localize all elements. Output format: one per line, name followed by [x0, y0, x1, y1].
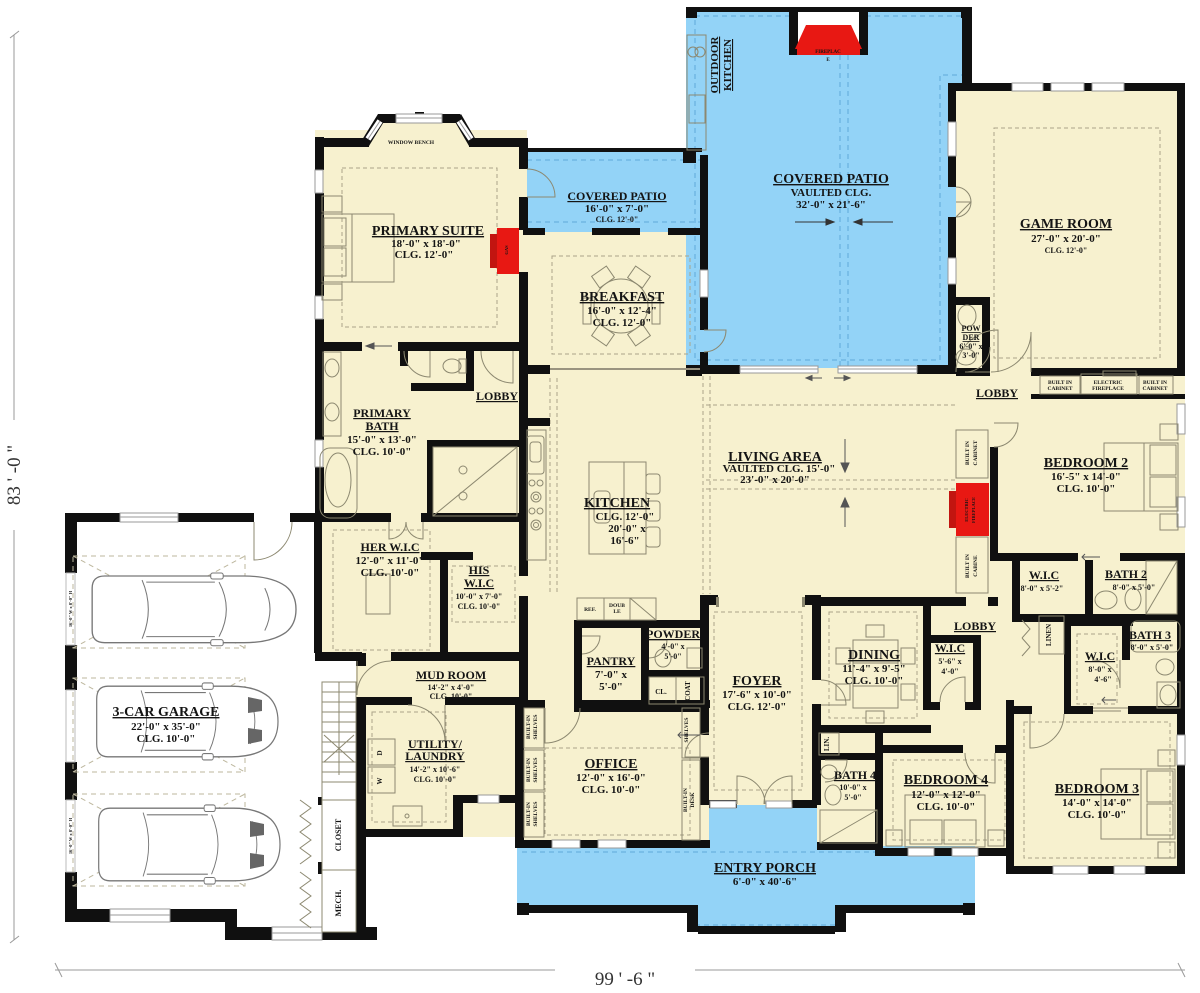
svg-text:DESK: DESK	[690, 792, 696, 808]
svg-text:KITCHEN: KITCHEN	[722, 39, 734, 91]
svg-text:COVERED PATIO: COVERED PATIO	[567, 189, 666, 203]
svg-text:BEDROOM 4: BEDROOM 4	[904, 773, 988, 788]
svg-text:MUD ROOM: MUD ROOM	[416, 668, 486, 682]
svg-text:SHELVES: SHELVES	[684, 718, 690, 743]
svg-text:4'-6": 4'-6"	[1094, 675, 1111, 684]
svg-text:PANTRY: PANTRY	[587, 654, 636, 668]
svg-text:CLG. 12'-0": CLG. 12'-0"	[593, 317, 652, 329]
svg-text:CLG. 10'-0": CLG. 10'-0"	[361, 567, 420, 579]
svg-text:6'-0" x 40'-6": 6'-0" x 40'-6"	[733, 876, 797, 888]
svg-text:ENTRY PORCH: ENTRY PORCH	[714, 861, 816, 876]
svg-text:SHELVES: SHELVES	[533, 802, 539, 827]
svg-text:14'-2" x 10'-6": 14'-2" x 10'-6"	[410, 765, 461, 774]
svg-text:16'-0" W x 8'-0" H: 16'-0" W x 8'-0" H	[68, 817, 73, 854]
svg-text:CLG. 10'-0": CLG. 10'-0"	[414, 775, 457, 784]
svg-text:PRIMARY SUITE: PRIMARY SUITE	[372, 224, 484, 239]
svg-text:LOBBY: LOBBY	[976, 386, 1018, 400]
svg-text:CLG. 10'-0": CLG. 10'-0"	[430, 692, 473, 701]
svg-text:27'-0" x 20'-0": 27'-0" x 20'-0"	[1031, 233, 1101, 245]
svg-text:SHELVES: SHELVES	[533, 715, 539, 740]
svg-text:CLG. 10'-0": CLG. 10'-0"	[353, 446, 412, 458]
svg-text:POW: POW	[961, 324, 980, 333]
svg-text:16'-6": 16'-6"	[610, 535, 639, 547]
svg-text:8'-0" x: 8'-0" x	[1088, 665, 1111, 674]
svg-text:FIREPLAC: FIREPLAC	[815, 50, 841, 55]
svg-text:4'-0": 4'-0"	[941, 667, 958, 676]
svg-text:12'-0" x 16'-0": 12'-0" x 16'-0"	[576, 772, 646, 784]
svg-text:MECH.: MECH.	[334, 890, 343, 917]
svg-text:CLG. 12'-0": CLG. 12'-0"	[1045, 246, 1088, 255]
svg-text:CLOSET: CLOSET	[334, 818, 343, 851]
svg-text:5'-0": 5'-0"	[844, 793, 861, 802]
svg-text:COAT: COAT	[684, 681, 692, 701]
svg-text:12'-0" x 11'-0": 12'-0" x 11'-0"	[355, 555, 424, 567]
svg-text:D: D	[376, 750, 384, 755]
svg-text:WINDOW BENCH: WINDOW BENCH	[388, 140, 435, 146]
svg-text:BATH 2: BATH 2	[1105, 567, 1147, 581]
svg-text:CLG. 12'-0": CLG. 12'-0"	[596, 215, 639, 224]
svg-text:8'-0" x 5'-2": 8'-0" x 5'-2"	[1021, 584, 1064, 593]
svg-text:FOYER: FOYER	[733, 674, 783, 689]
svg-text:20'-0" x: 20'-0" x	[608, 523, 646, 535]
svg-text:HIS: HIS	[469, 563, 490, 577]
svg-text:CLG. 10'-0": CLG. 10'-0"	[458, 602, 501, 611]
svg-text:COVERED PATIO: COVERED PATIO	[773, 172, 889, 187]
svg-text:FIREPLACE: FIREPLACE	[1092, 386, 1124, 392]
svg-text:10'-0" x 7'-0": 10'-0" x 7'-0"	[456, 592, 503, 601]
svg-text:OUTDOOR: OUTDOOR	[709, 36, 721, 94]
svg-text:POWDER: POWDER	[646, 627, 700, 641]
svg-text:83 ' -0 ": 83 ' -0 "	[4, 445, 25, 505]
svg-text:W: W	[376, 778, 384, 785]
svg-text:CLG. 10'-0": CLG. 10'-0"	[137, 733, 196, 745]
svg-text:BUILT-IN: BUILT-IN	[683, 788, 689, 812]
svg-text:CLG. 10'-0": CLG. 10'-0"	[1068, 809, 1127, 821]
svg-text:LIN.: LIN.	[823, 737, 831, 751]
svg-text:8'-0" x 5'-0": 8'-0" x 5'-0"	[1113, 583, 1156, 592]
svg-text:5'-0": 5'-0"	[599, 681, 623, 693]
svg-text:14'-0" x 14'-0": 14'-0" x 14'-0"	[1062, 797, 1132, 809]
svg-text:16'-5" x 14'-0": 16'-5" x 14'-0"	[1051, 471, 1121, 483]
svg-text:BATH: BATH	[365, 419, 399, 433]
svg-text:HER W.I.C: HER W.I.C	[360, 540, 419, 554]
svg-text:LOBBY: LOBBY	[954, 619, 996, 633]
svg-text:BUILT IN: BUILT IN	[965, 441, 971, 465]
svg-text:14'-2" x 4'-0": 14'-2" x 4'-0"	[428, 683, 475, 692]
svg-text:FIREPLACE: FIREPLACE	[971, 497, 976, 523]
svg-text:CLG. 10'-0": CLG. 10'-0"	[917, 801, 976, 813]
svg-text:5'-6" x: 5'-6" x	[938, 657, 961, 666]
svg-text:22'-0" x 35'-0": 22'-0" x 35'-0"	[131, 721, 201, 733]
svg-text:CABINET: CABINET	[1142, 386, 1167, 392]
svg-text:GAS: GAS	[504, 245, 509, 255]
svg-text:DINING: DINING	[848, 648, 900, 663]
svg-text:7'-0" x: 7'-0" x	[595, 669, 628, 681]
svg-text:CLG. 10'-0": CLG. 10'-0"	[582, 784, 641, 796]
svg-text:SHELVES: SHELVES	[533, 758, 539, 783]
svg-text:VAULTED CLG.: VAULTED CLG.	[791, 187, 872, 199]
svg-text:4'-0" x: 4'-0" x	[661, 642, 684, 651]
svg-text:CL.: CL.	[655, 688, 667, 696]
svg-text:CLG. 12'-0": CLG. 12'-0"	[728, 701, 787, 713]
svg-text:12'-0" x 12'-0": 12'-0" x 12'-0"	[911, 789, 981, 801]
svg-text:CLG. 10'-0": CLG. 10'-0"	[1057, 483, 1116, 495]
svg-text:CABINET: CABINET	[1047, 386, 1072, 392]
svg-text:W.I.C: W.I.C	[935, 641, 965, 655]
svg-text:REF.: REF.	[584, 607, 596, 613]
svg-text:3'-0": 3'-0"	[962, 351, 979, 360]
svg-text:CLG. 10'-0": CLG. 10'-0"	[845, 675, 904, 687]
svg-text:W.I.C: W.I.C	[464, 576, 494, 590]
svg-text:W.I.C: W.I.C	[1029, 568, 1059, 582]
svg-text:23'-0" x 20'-0": 23'-0" x 20'-0"	[740, 474, 810, 486]
svg-text:16'-0" x 7'-0": 16'-0" x 7'-0"	[585, 203, 649, 215]
svg-text:3-CAR GARAGE: 3-CAR GARAGE	[113, 705, 220, 720]
svg-text:BATH 3: BATH 3	[1129, 628, 1171, 642]
svg-text:GAME ROOM: GAME ROOM	[1020, 217, 1112, 232]
svg-text:CLG. 12'-0": CLG. 12'-0"	[395, 249, 454, 261]
svg-text:BUILT-IN: BUILT-IN	[526, 758, 532, 782]
svg-text:10'-0" x: 10'-0" x	[839, 783, 866, 792]
svg-text:6'-0" x: 6'-0" x	[959, 342, 982, 351]
svg-text:BEDROOM 3: BEDROOM 3	[1055, 782, 1139, 797]
svg-text:CABINET: CABINET	[973, 440, 979, 465]
svg-text:BUILT IN: BUILT IN	[965, 554, 971, 578]
svg-text:8'-0" x 5'-0": 8'-0" x 5'-0"	[1131, 643, 1174, 652]
svg-text:CABINE: CABINE	[973, 555, 979, 577]
svg-text:LE: LE	[613, 609, 621, 615]
svg-text:15'-0" x 13'-0": 15'-0" x 13'-0"	[347, 434, 417, 446]
svg-text:16'-0" W x 8'-0" H: 16'-0" W x 8'-0" H	[68, 590, 73, 627]
svg-text:BEDROOM 2: BEDROOM 2	[1044, 456, 1128, 471]
svg-text:17'-6" x 10'-0": 17'-6" x 10'-0"	[722, 689, 792, 701]
svg-text:BUILT-IN: BUILT-IN	[526, 802, 532, 826]
svg-text:5'-0": 5'-0"	[664, 652, 681, 661]
svg-text:LINEN: LINEN	[1045, 624, 1053, 646]
svg-text:KITCHEN: KITCHEN	[584, 496, 650, 511]
svg-text:BREAKFAST: BREAKFAST	[580, 290, 665, 305]
svg-text:99 ' -6 ": 99 ' -6 "	[595, 969, 655, 990]
svg-text:PRIMARY: PRIMARY	[353, 406, 411, 420]
svg-text:BATH 4: BATH 4	[834, 768, 876, 782]
svg-text:DER: DER	[963, 333, 980, 342]
svg-text:OFFICE: OFFICE	[585, 757, 638, 772]
svg-text:W.I.C: W.I.C	[1085, 649, 1115, 663]
svg-text:LAUNDRY: LAUNDRY	[405, 749, 465, 763]
svg-text:11'-4" x 9'-5": 11'-4" x 9'-5"	[842, 663, 906, 675]
svg-text:16'-0" x 12'-4": 16'-0" x 12'-4"	[587, 305, 657, 317]
svg-text:LOBBY: LOBBY	[476, 389, 518, 403]
svg-text:ELECTRIC: ELECTRIC	[964, 498, 969, 522]
svg-text:BUILT-IN: BUILT-IN	[526, 715, 532, 739]
svg-text:CLG. 12'-0": CLG. 12'-0"	[596, 511, 655, 523]
svg-text:32'-0" x 21'-6": 32'-0" x 21'-6"	[796, 199, 866, 211]
